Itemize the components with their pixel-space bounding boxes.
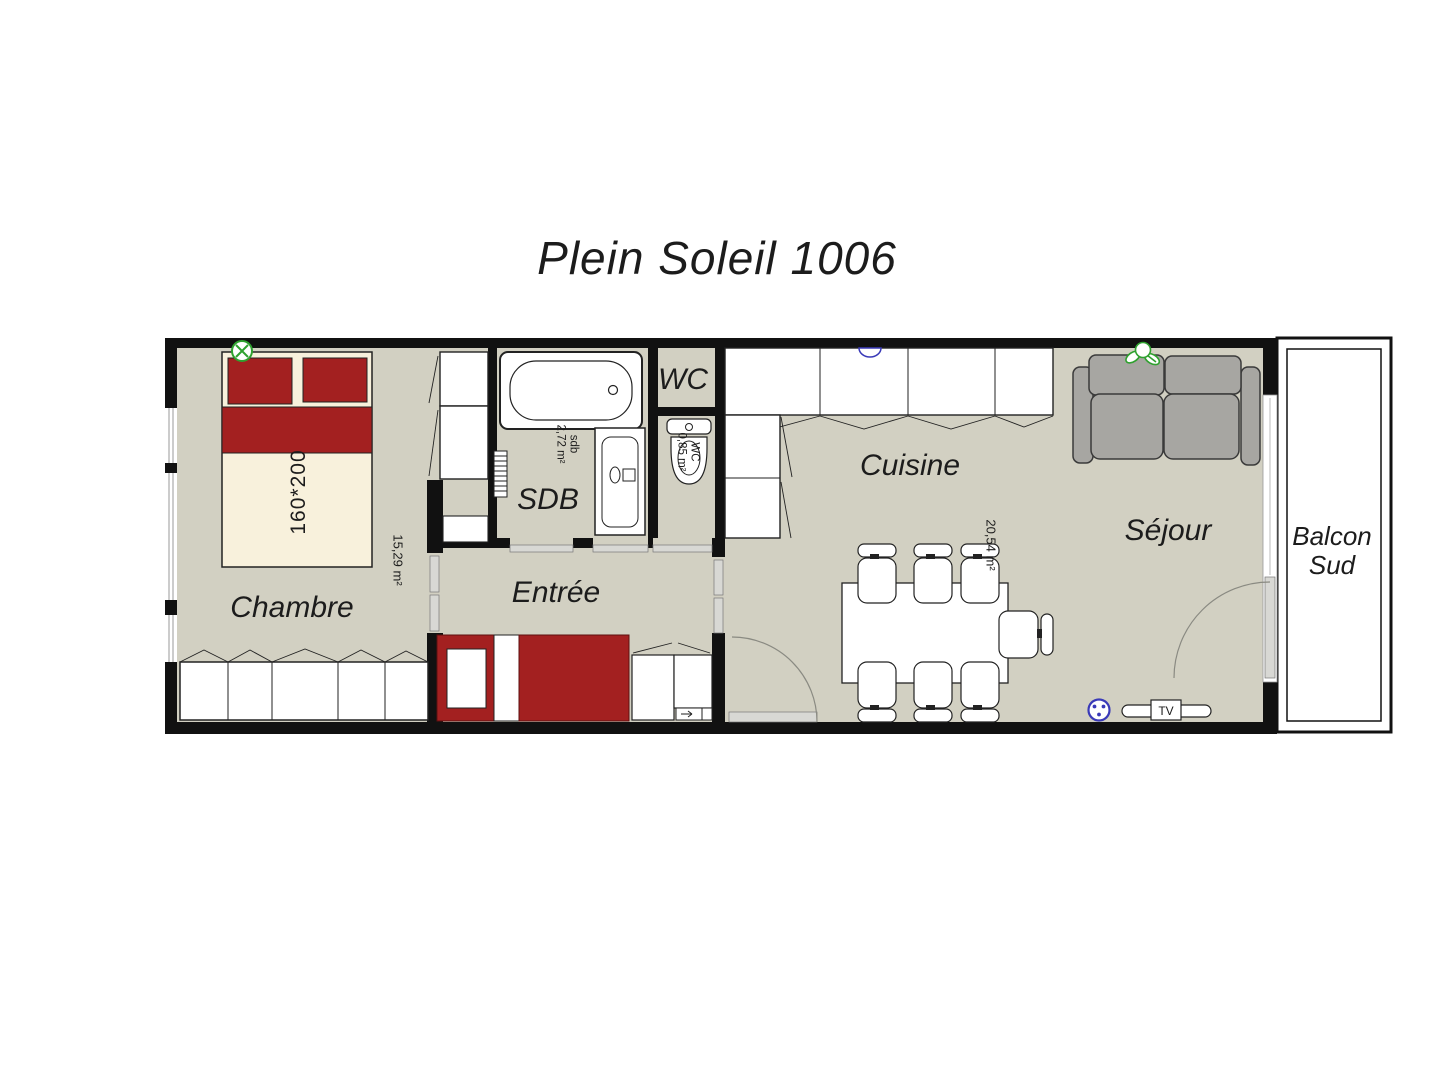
- wall-chambre-entree-seg: [427, 480, 443, 553]
- wall-wc-cuisine: [715, 348, 725, 540]
- wall-left-seg: [165, 600, 177, 615]
- entry-door-leaf: [729, 712, 817, 722]
- wall-left-seg: [165, 662, 177, 734]
- room-label-chambre: Chambre: [230, 591, 353, 625]
- bed-blanket: [222, 407, 372, 453]
- bathtub-drain: [609, 386, 618, 395]
- chair-back: [858, 709, 896, 722]
- power-outlet-icon: [1089, 700, 1110, 721]
- chair-seat: [914, 662, 952, 708]
- entree-cabinet: [674, 655, 712, 708]
- kitchen-counter-side: [725, 415, 780, 538]
- wc-divider-wall: [648, 407, 725, 416]
- closet-unit: [440, 352, 488, 406]
- room-label-wc: WC: [658, 363, 708, 397]
- wc-door-leaf: [653, 545, 712, 552]
- room-label-sdb: SDB: [517, 483, 579, 517]
- balcony-door-leaf: [1265, 577, 1275, 678]
- room-label-entree: Entrée: [512, 576, 600, 610]
- chair-back: [1041, 614, 1053, 655]
- entree-drawer-small: [702, 708, 712, 720]
- sofa: [1073, 355, 1260, 465]
- closet-unit: [440, 406, 488, 479]
- area-label-sdb: sdb 2,72 m²: [554, 425, 579, 464]
- radiator: [494, 451, 507, 497]
- wall-entree-cuisine-seg: [712, 540, 725, 557]
- room-label-cuisine: Cuisine: [860, 449, 960, 483]
- wall-left-seg: [165, 463, 177, 473]
- area-label-cuisine: 20,54 m²: [983, 519, 998, 570]
- room-label-balcon: Balcon Sud: [1292, 522, 1372, 580]
- wardrobe: [180, 662, 428, 720]
- chair-back: [961, 709, 999, 722]
- wall-sdb-wc: [648, 348, 658, 538]
- chambre-door-rail: [430, 595, 439, 631]
- sdb-door-leaf2: [593, 545, 648, 552]
- chair-seat: [999, 611, 1038, 658]
- chair-back: [914, 709, 952, 722]
- entree-door-rail: [714, 598, 723, 633]
- sofa-seat-cushion: [1164, 394, 1239, 459]
- wall-sejour-balcon-seg: [1263, 338, 1277, 395]
- sofa-back-cushion: [1165, 356, 1241, 394]
- sink-faucet: [610, 467, 620, 483]
- sofa-seat-cushion: [1091, 394, 1163, 459]
- bed-size-label: 160*200: [287, 449, 311, 534]
- bed-pillow: [228, 358, 292, 404]
- wall-top: [165, 338, 1277, 348]
- balcony-glazing: [1263, 395, 1277, 682]
- sdb-door-leaf: [510, 545, 573, 552]
- chair-seat: [961, 662, 999, 708]
- chambre-door-rail: [430, 556, 439, 592]
- room-label-sejour: Séjour: [1125, 514, 1212, 548]
- wall-entree-top-seg: [648, 538, 653, 548]
- entree-door-rail: [714, 560, 723, 595]
- sink-basin: [602, 437, 638, 527]
- chair-seat: [914, 558, 952, 603]
- chair-seat: [858, 558, 896, 603]
- bench-cushion: [447, 649, 486, 708]
- wall-entree-cuisine-seg: [712, 633, 725, 722]
- wall-entree-top-seg: [573, 538, 593, 548]
- sink-tap-box: [623, 469, 635, 481]
- bench-divider: [494, 635, 519, 721]
- wall-chambre-sdb: [488, 348, 497, 545]
- wall-bottom: [165, 722, 1277, 734]
- wall-sejour-balcon-seg: [1263, 682, 1277, 734]
- left-windows: [165, 408, 177, 662]
- bed-pillow: [303, 358, 367, 402]
- entree-cabinet: [632, 655, 674, 720]
- kitchen-counter-top: [725, 348, 1053, 415]
- wall-left-seg: [165, 338, 177, 408]
- area-label-chambre: 15,29 m²: [390, 534, 405, 585]
- vent-icon: [232, 341, 252, 361]
- tv-label: TV: [1158, 704, 1173, 718]
- closet-low-unit: [443, 516, 488, 542]
- area-label-wc: WC 0,85 m²: [675, 433, 700, 472]
- sofa-armrest: [1241, 367, 1260, 465]
- chair-seat: [858, 662, 896, 708]
- floorplan-page: Plein Soleil 1006: [0, 0, 1440, 1080]
- toilet-button: [686, 424, 693, 431]
- floorplan-drawing: TV: [0, 0, 1440, 1080]
- sofa-bed: [519, 635, 629, 721]
